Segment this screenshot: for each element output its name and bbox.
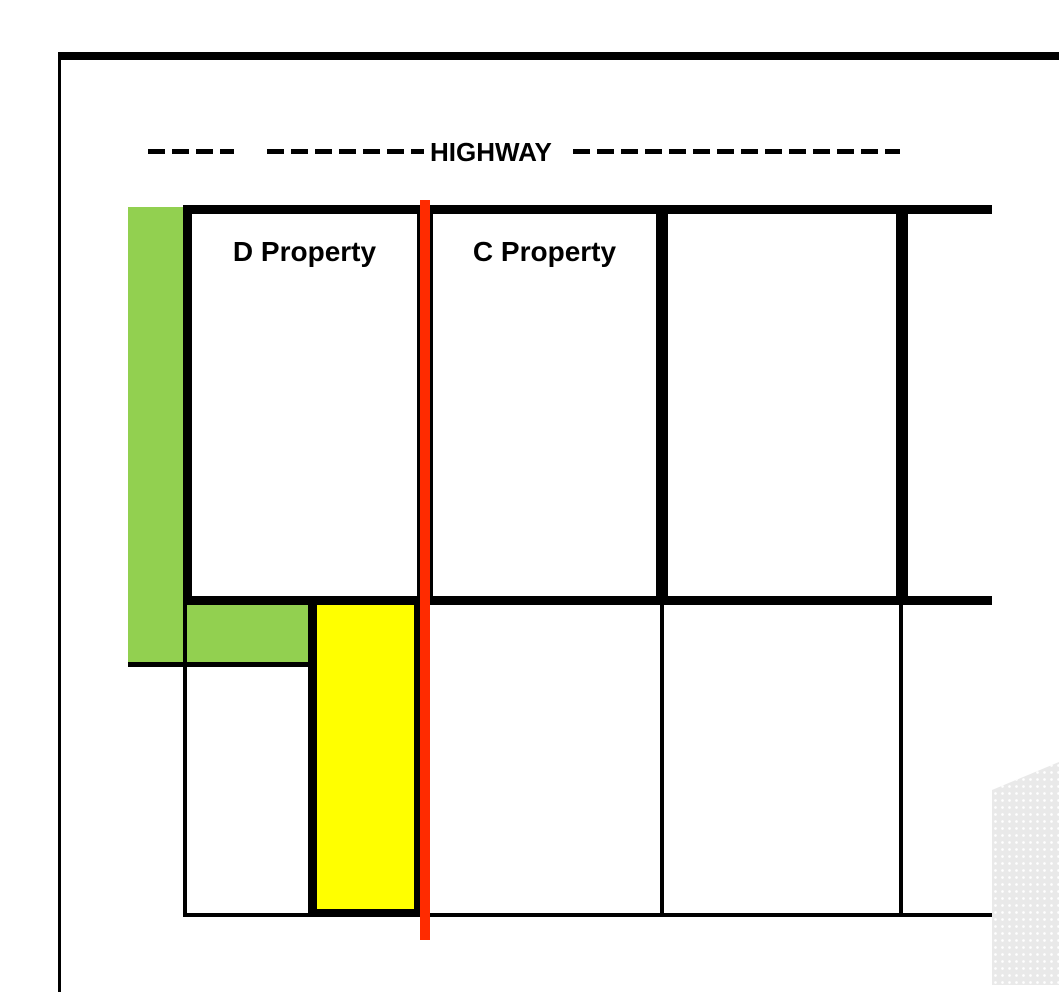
- highway-label: HIGHWAY: [430, 138, 552, 166]
- highway-dash-segment-mid: [267, 149, 424, 154]
- page-left-rule: [58, 52, 61, 992]
- yellow-strip-lot: [308, 605, 420, 917]
- row1-top-boundary: [183, 205, 992, 214]
- green-strip-bottom-line: [128, 662, 310, 667]
- red-boundary-line: [420, 200, 430, 940]
- lower-parcel-mid-line: [660, 605, 664, 915]
- plat-diagram: HIGHWAY D Property C Property: [0, 0, 1059, 995]
- page-corner-shadow: [992, 762, 1059, 985]
- row1-bottom-boundary: [183, 596, 992, 605]
- highway-dash-segment-left: [148, 149, 234, 154]
- page-top-rule: [58, 52, 1059, 60]
- property-d-left-boundary: [183, 205, 192, 605]
- green-strip-horizontal: [187, 605, 308, 662]
- property-3-right-boundary: [896, 205, 908, 605]
- property-d-label: D Property: [192, 238, 417, 266]
- property-c-right-boundary: [656, 205, 668, 605]
- highway-dash-segment-right: [573, 149, 900, 154]
- lower-parcel-right-line: [899, 605, 903, 915]
- property-c-label: C Property: [433, 238, 656, 266]
- lower-parcel-bottom-line: [183, 913, 992, 917]
- green-strip-vertical: [128, 207, 183, 662]
